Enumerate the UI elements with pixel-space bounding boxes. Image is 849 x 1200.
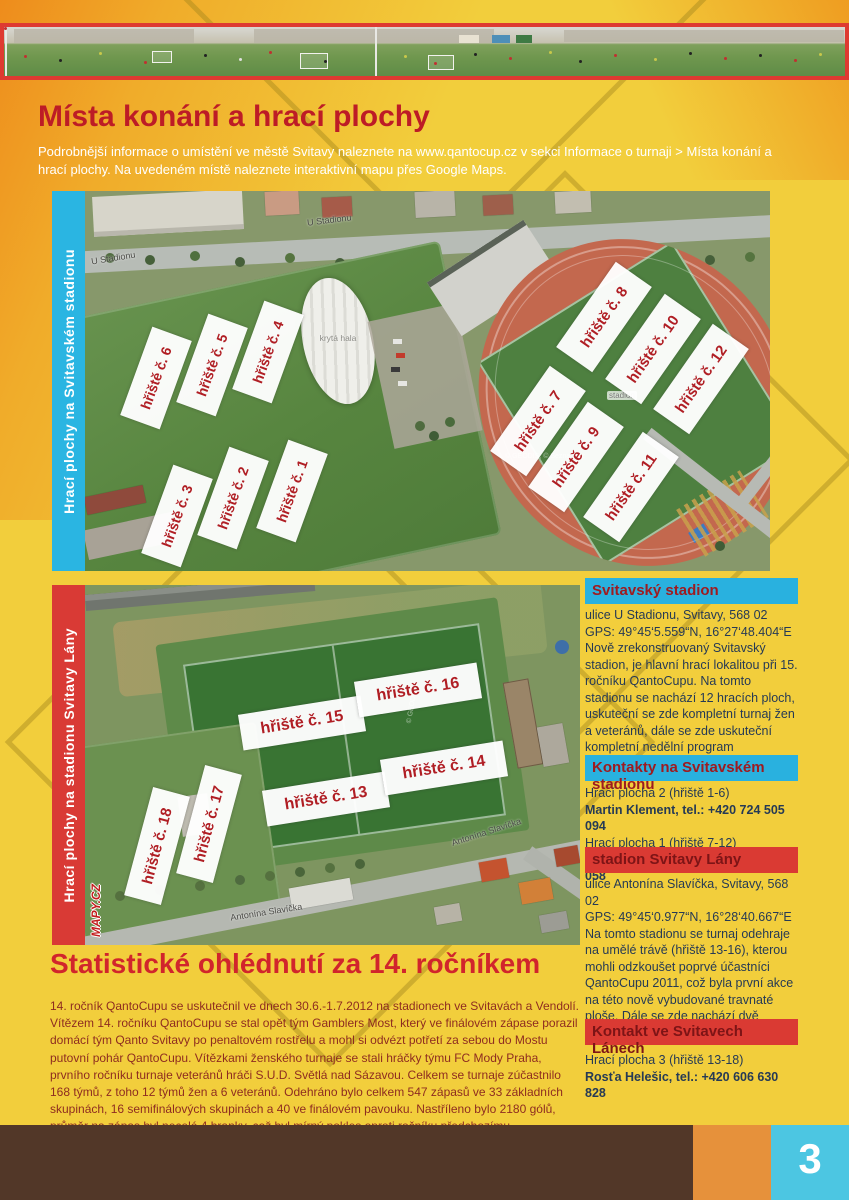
map2-round-object [555, 640, 569, 654]
map2-house [539, 911, 570, 934]
map1-house [482, 194, 513, 216]
photo-tent [516, 35, 532, 43]
map2-building [537, 723, 570, 767]
map1-side-strip: Hrací plochy na Svitavském stadionu [52, 191, 85, 571]
page-number: 3 [798, 1135, 821, 1183]
pitch-line: Hrací plocha 3 (hřiště 13-18) [585, 1052, 799, 1069]
map1-trees [415, 421, 425, 431]
map1-building [92, 191, 244, 237]
footer-page-number-block: 3 [771, 1125, 849, 1200]
contact-line: Rosťa Helešic, tel.: +420 606 630 828 [585, 1069, 799, 1102]
address-line: ulice U Stadionu, Svitavy, 568 02 [585, 607, 799, 624]
photo-tent [459, 35, 479, 43]
photo-buildings [254, 29, 494, 43]
pitch-line: Hrací plocha 2 (hřiště 1-6) [585, 785, 799, 802]
photo-goal [428, 55, 454, 70]
sidebar-box1-body: ulice U Stadionu, Svitavy, 568 02 GPS: 4… [585, 607, 799, 772]
photo-goal [152, 51, 172, 63]
map2-house [434, 903, 463, 925]
gps-line: GPS: 49°45‘5.559“N, 16°27‘48.404“E [585, 624, 799, 641]
photo-buildings [564, 30, 844, 42]
address-line: ulice Antonína Slavíčka, Svitavy, 568 02 [585, 876, 799, 909]
photo-goal-post [375, 27, 377, 76]
sidebar-header-stadion-lany: stadion Svitavy Lány [585, 847, 798, 873]
map2-house [554, 845, 580, 867]
map1-house [264, 191, 299, 216]
stats-paragraph: 14. ročník QantoCupu se uskutečnil ve dn… [50, 998, 583, 1136]
footer-orange-block [693, 1125, 771, 1200]
sidebar-header-svitavsky-stadion: Svitavský stadion [585, 578, 798, 604]
contact-line: Martin Klement, tel.: +420 724 505 094 [585, 802, 799, 835]
stats-title: Statistické ohlédnutí za 14. ročníkem [50, 948, 540, 980]
map2-side-strip: Hrací plochy na stadionu Svitavy Lány [52, 585, 85, 945]
map2-house [518, 877, 553, 904]
photo-buildings [14, 29, 194, 43]
photo-players [4, 27, 7, 30]
map1-strip-label: Hrací plochy na Svitavském stadionu [61, 249, 77, 514]
sidebar-header-kontakt-lany: Kontakt ve Svitavech Lánech [585, 1019, 798, 1045]
mapy-cz-watermark: MAPY.CZ [89, 884, 103, 937]
photo-goal [300, 53, 328, 69]
map-svitavsky-stadion: U Stadionu U Stadionu krytá hala stadion… [85, 191, 770, 571]
page-title: Místa konání a hrací plochy [38, 100, 430, 134]
header-panorama-photo [0, 23, 849, 80]
gps-line: GPS: 49°45‘0.977“N, 16°28‘40.667“E [585, 909, 799, 926]
page-subtitle: Podrobnější informace o umístění ve měst… [38, 143, 790, 179]
sidebar-box3-body: ulice Antonína Slavíčka, Svitavy, 568 02… [585, 876, 799, 1041]
map1-house [414, 191, 455, 218]
map2-strip-label: Hrací plochy na stadionu Svitavy Lány [61, 628, 77, 902]
map1-hall-label: krytá hala [315, 333, 361, 343]
photo-tent [492, 35, 510, 43]
map1-street-label: U Stadionu [307, 212, 352, 227]
sidebar-box4-body: Hrací plocha 3 (hřiště 13-18) Rosťa Hele… [585, 1052, 799, 1102]
photo-goal-post [5, 27, 7, 76]
map1-cars [393, 339, 402, 344]
sidebar-header-kontakty-stadion: Kontakty na Svitavském stadionu [585, 755, 798, 781]
map-svitavy-lany: Antonína Slavíčka Antonína Slavíčka © GE… [85, 585, 580, 945]
map2-trees [235, 875, 245, 885]
description-text: Nově zrekonstruovaný Svitavský stadion, … [585, 640, 799, 772]
map2-house [478, 858, 509, 883]
map1-house [554, 191, 591, 214]
